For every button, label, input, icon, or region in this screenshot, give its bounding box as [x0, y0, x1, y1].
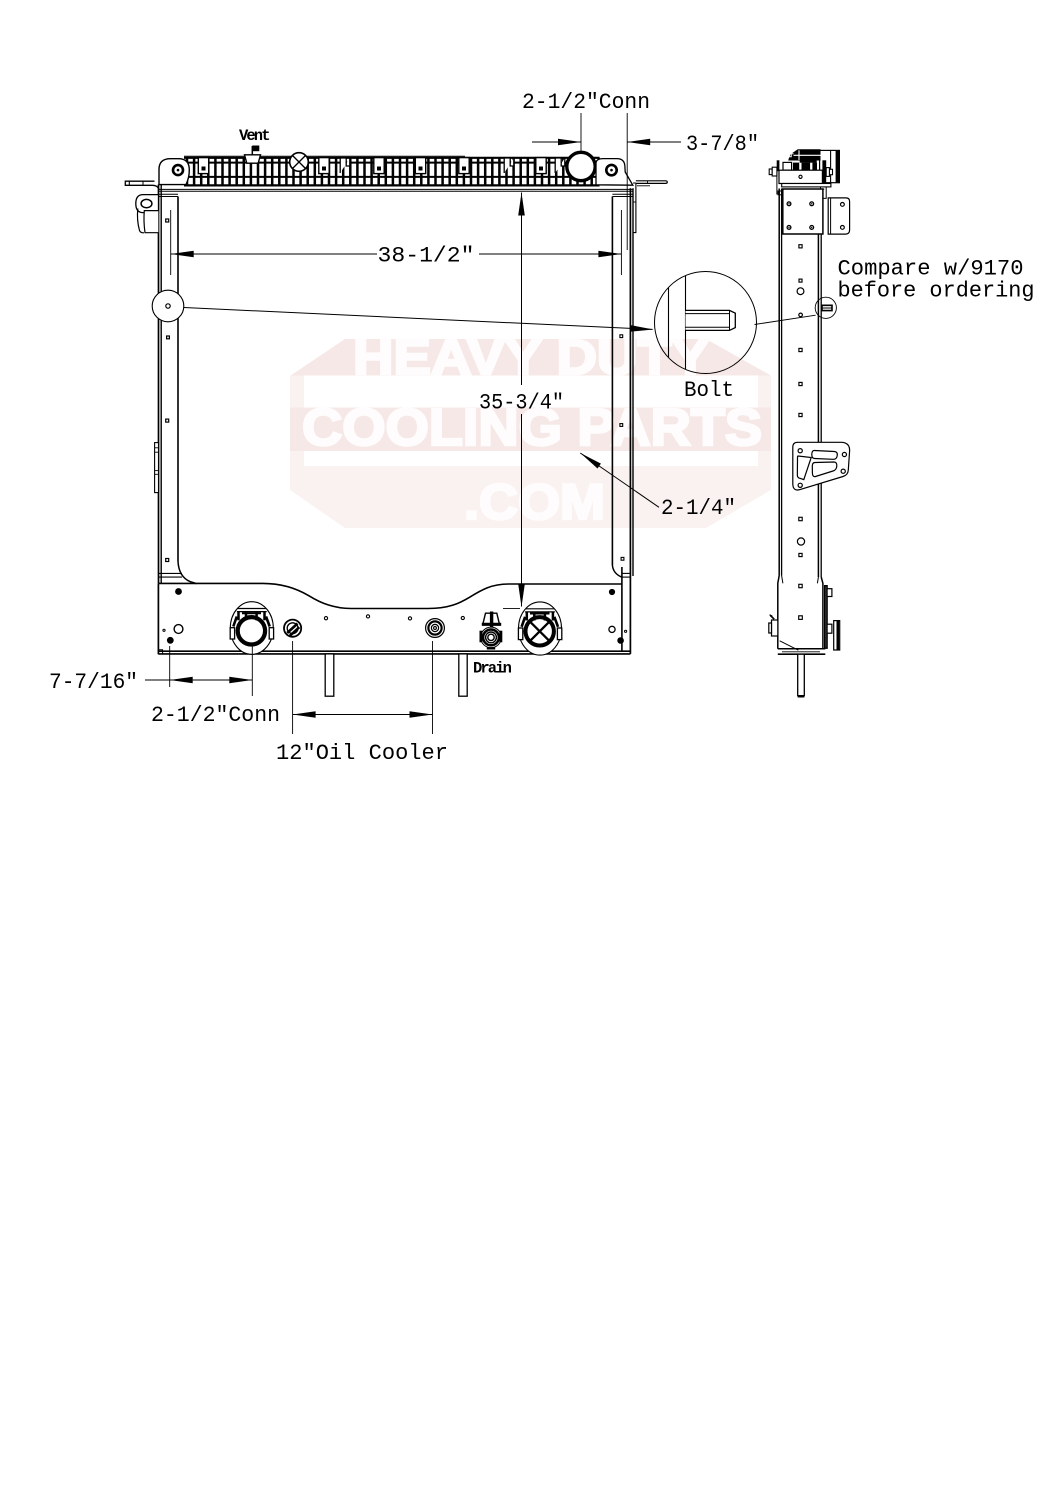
svg-text:HEAVY DUTY: HEAVY DUTY [353, 331, 709, 385]
svg-text:Drain: Drain [473, 660, 512, 678]
svg-text:3-7/8": 3-7/8" [686, 132, 759, 157]
svg-text:12"Oil Cooler: 12"Oil Cooler [276, 741, 448, 766]
svg-text:35-3/4": 35-3/4" [479, 391, 564, 416]
svg-text:38-1/2": 38-1/2" [378, 244, 475, 269]
svg-text:Vent: Vent [239, 127, 269, 145]
svg-text:2-1/2"Conn: 2-1/2"Conn [522, 90, 650, 115]
svg-text:2-1/4": 2-1/4" [661, 496, 736, 521]
svg-text:before ordering: before ordering [838, 278, 1035, 303]
svg-text:Bolt: Bolt [684, 378, 734, 403]
svg-text:2-1/2"Conn: 2-1/2"Conn [151, 703, 280, 728]
svg-text:7-7/16": 7-7/16" [49, 670, 138, 695]
svg-text:.COM: .COM [464, 474, 605, 530]
